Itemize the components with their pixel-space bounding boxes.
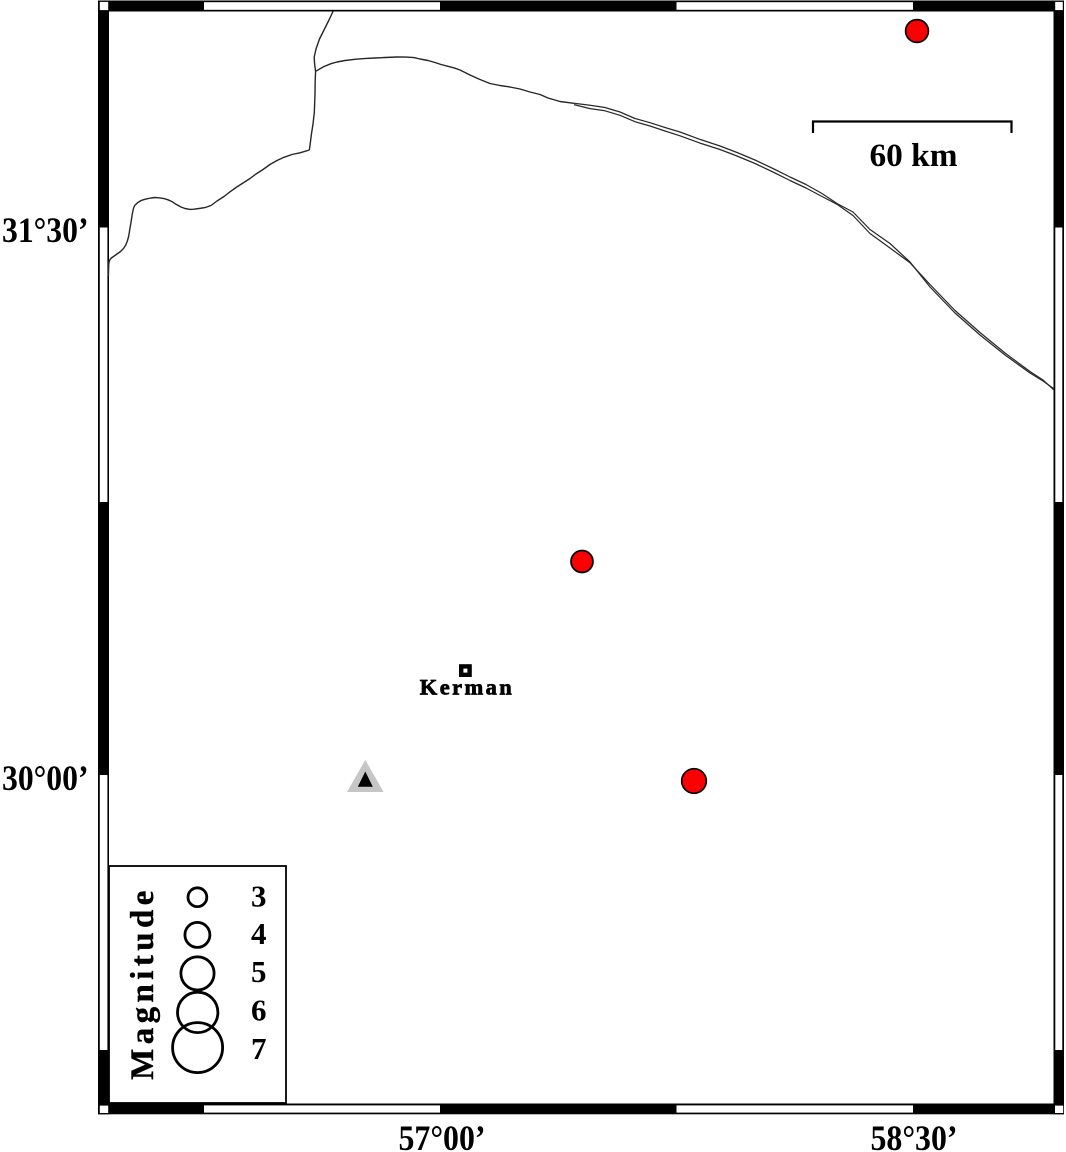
svg-text:58°30’: 58°30’	[871, 1118, 958, 1152]
svg-text:60 km: 60 km	[870, 138, 958, 174]
svg-text:30°00’: 30°00’	[2, 758, 89, 798]
svg-text:5: 5	[251, 954, 267, 989]
svg-text:3: 3	[251, 878, 267, 913]
svg-text:Kerman: Kerman	[420, 675, 514, 700]
svg-text:7: 7	[251, 1031, 267, 1066]
svg-text:Magnitude: Magnitude	[125, 886, 161, 1080]
svg-text:31°30’: 31°30’	[2, 210, 89, 250]
svg-text:57°00’: 57°00’	[399, 1118, 486, 1152]
svg-text:6: 6	[251, 992, 267, 1027]
svg-text:4: 4	[251, 916, 267, 951]
